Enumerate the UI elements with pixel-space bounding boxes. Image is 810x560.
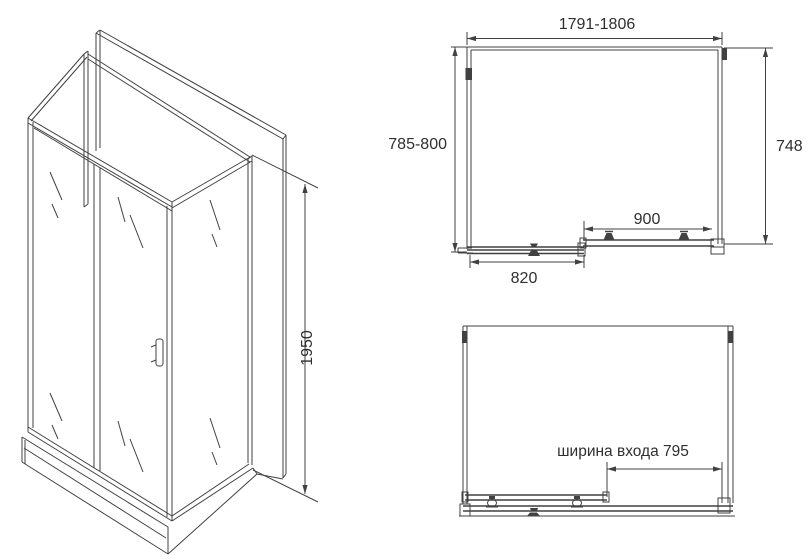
back-panel [96,30,286,478]
entrance-dimension: ширина входа 795 [557,443,722,503]
height-dimension-label: 1950 [299,330,316,366]
right-depth-dimension: 748 [724,48,803,244]
shower-tray [22,437,283,554]
open-view-frame [462,326,733,504]
door-handle [151,339,163,366]
entrance-dimension-label: ширина входа 795 [557,443,689,460]
fixed-panel-dimension: 820 [470,255,584,287]
height-dimension: 1950 [252,155,318,502]
right-wall-profile-tick [728,331,734,343]
open-door [462,492,609,502]
left-depth-dimension: 785-800 [388,47,467,252]
left-wall-profile-tick [462,331,468,343]
right-wall-profile-tick [722,48,728,60]
technical-drawing-page: 1950 1791-1806 785-800 7 [0,0,810,560]
left-side-panel [28,51,250,207]
glass-reflection-marks [50,172,220,472]
enclosure-frame [458,47,727,253]
sliding-door-edge [94,164,100,471]
width-dimension-label: 1791-1806 [559,16,636,33]
shower-enclosure-drawing: 1950 1791-1806 785-800 7 [0,0,810,560]
width-dimension: 1791-1806 [467,16,722,45]
fixed-panel-rail [467,243,585,256]
left-wall-profile-tick [466,68,473,80]
fixed-panel-dimension-label: 820 [511,270,538,287]
door-width-dimension-label: 900 [634,211,661,228]
door-rail [580,238,724,254]
door-width-dimension: 900 [584,211,712,240]
left-depth-dimension-label: 785-800 [388,136,447,153]
right-side-panel [172,156,253,521]
door-rollers [604,232,690,241]
iso-view: 1950 [22,30,318,554]
plan-view: 1791-1806 785-800 748 [388,16,803,287]
open-door-view: ширина входа 795 [459,326,735,516]
right-depth-dimension-label: 748 [776,138,803,155]
